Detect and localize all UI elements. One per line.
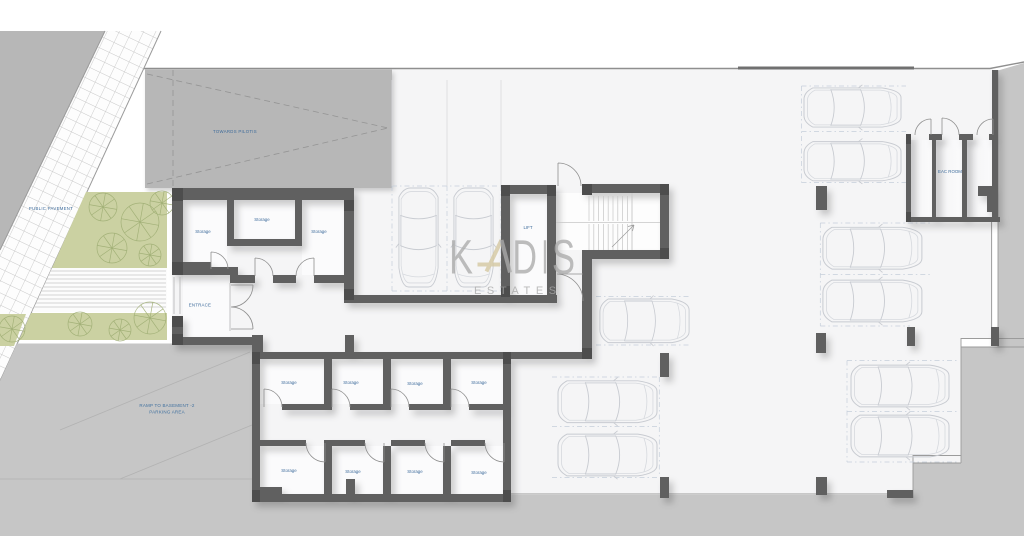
svg-text:TOWARDS PILOTIS: TOWARDS PILOTIS [213, 129, 257, 134]
svg-text:Storage: Storage [345, 469, 361, 474]
svg-text:Storage: Storage [407, 381, 423, 386]
svg-text:I: I [542, 232, 549, 285]
svg-text:LIFT: LIFT [523, 225, 532, 230]
svg-text:D: D [513, 232, 538, 285]
svg-text:Storage: Storage [195, 229, 211, 234]
svg-text:EAC ROOM: EAC ROOM [938, 169, 962, 174]
svg-text:Storage: Storage [281, 380, 297, 385]
svg-text:Storage: Storage [311, 229, 327, 234]
svg-text:Storage: Storage [343, 380, 359, 385]
svg-text:Storage: Storage [254, 217, 270, 222]
svg-text:K: K [449, 232, 473, 285]
svg-text:PARKING AREA: PARKING AREA [149, 410, 185, 415]
svg-text:Storage: Storage [407, 469, 423, 474]
svg-text:ESTATES: ESTATES [474, 285, 562, 297]
svg-text:Storage: Storage [471, 470, 487, 475]
svg-text:S: S [552, 232, 575, 285]
svg-text:ENTRACE: ENTRACE [189, 303, 211, 308]
svg-text:RAMP TO BASEMENT -2: RAMP TO BASEMENT -2 [139, 403, 195, 408]
svg-text:PUBLIC PAVEMENT: PUBLIC PAVEMENT [29, 206, 73, 211]
svg-text:Storage: Storage [281, 468, 297, 473]
svg-text:Storage: Storage [471, 380, 487, 385]
